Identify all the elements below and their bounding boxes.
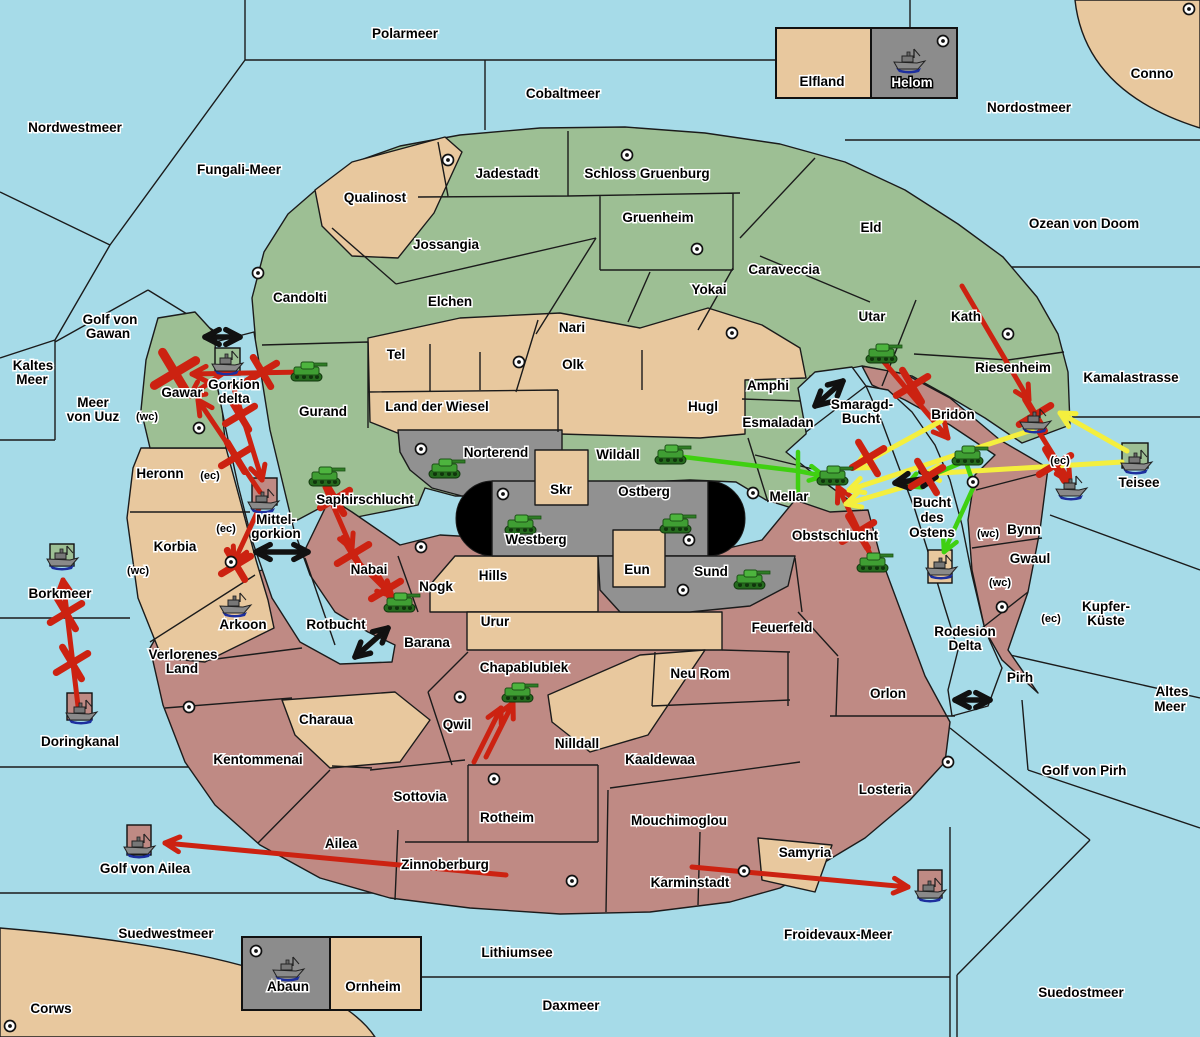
- territory-label: Nogk: [419, 579, 453, 594]
- territory-label: (ec): [216, 523, 236, 535]
- territory-label: Rotbucht: [306, 617, 366, 632]
- town-dot: [443, 155, 454, 166]
- territory-label: Meer: [77, 395, 109, 410]
- town-dot: [498, 489, 509, 500]
- territory-label: Altes: [1155, 684, 1188, 699]
- town-dot: [748, 488, 759, 499]
- territory-label: Norterend: [464, 445, 529, 460]
- territory-label: Cobaltmeer: [526, 86, 601, 101]
- territory-label: Heronn: [136, 466, 183, 481]
- legend-bottom: [242, 937, 421, 1010]
- region-eun: [613, 530, 665, 587]
- territory-label: (wc): [127, 565, 149, 577]
- territory-label: Helom: [891, 75, 932, 90]
- territory-label: Losteria: [859, 782, 912, 797]
- territory-label: Urur: [481, 614, 510, 629]
- territory-label: Gwaul: [1010, 551, 1051, 566]
- territory-label: Land der Wiesel: [385, 399, 488, 414]
- territory-label: des: [920, 510, 943, 525]
- territory-label: Land: [166, 661, 198, 676]
- town-dot: [184, 702, 195, 713]
- territory-label: Chapablublek: [480, 660, 569, 675]
- territory-label: (ec): [200, 470, 220, 482]
- territory-label: Ozean von Doom: [1029, 216, 1139, 231]
- territory-label: Lithiumsee: [481, 945, 553, 960]
- game-map[interactable]: PolarmeerCobaltmeerNordostmeerConnoNordw…: [0, 0, 1200, 1037]
- territory-label: Orlon: [870, 686, 906, 701]
- town-dot: [416, 444, 427, 455]
- town-dot: [678, 585, 689, 596]
- territory-label: (wc): [977, 528, 999, 540]
- territory-label: Mouchimoglou: [631, 813, 727, 828]
- territory-label: Sund: [694, 564, 728, 579]
- territory-label: Suedwestmeer: [118, 926, 214, 941]
- territory-label: Gawan: [86, 326, 130, 341]
- territory-label: Polarmeer: [372, 26, 439, 41]
- territory-label: Riesenheim: [975, 360, 1051, 375]
- territory-label: (wc): [989, 577, 1011, 589]
- territory-label: Kentommenai: [213, 752, 302, 767]
- territory-label: Ostens: [909, 525, 955, 540]
- territory-label: Gawar: [161, 385, 203, 400]
- town-dot: [943, 757, 954, 768]
- territory-label: gorkion: [251, 526, 301, 541]
- territory-label: (ec): [1041, 613, 1061, 625]
- territory-label: Smaragd-: [831, 397, 893, 412]
- territory-label: Küste: [1087, 613, 1125, 628]
- town-dot: [251, 946, 262, 957]
- territory-label: Nilldall: [555, 736, 599, 751]
- territory-label: Neu Rom: [670, 666, 729, 681]
- territory-label: Bucht: [913, 495, 952, 510]
- territory-label: Corws: [30, 1001, 71, 1016]
- territory-label: Rodesion: [934, 624, 996, 639]
- territory-label: Kupfer-: [1082, 599, 1130, 614]
- territory-label: delta: [218, 391, 250, 406]
- territory-label: Amphi: [747, 378, 789, 393]
- territory-label: Ostberg: [618, 484, 670, 499]
- territory-label: Meer: [1154, 699, 1186, 714]
- territory-label: Meer: [16, 372, 48, 387]
- territory-label: Fungali-Meer: [197, 162, 282, 177]
- territory-label: Ornheim: [345, 979, 401, 994]
- region-hills: [430, 556, 598, 612]
- territory-label: Obstschlucht: [792, 528, 879, 543]
- town-dot: [5, 1021, 16, 1032]
- town-dot: [968, 477, 979, 488]
- town-dot: [684, 535, 695, 546]
- town-dot: [938, 36, 949, 47]
- town-dot: [416, 542, 427, 553]
- territory-label: Esmaladan: [742, 415, 813, 430]
- territory-label: Jossangia: [413, 237, 480, 252]
- territory-label: Conno: [1131, 66, 1174, 81]
- territory-label: Candolti: [273, 290, 327, 305]
- territory-label: Korbia: [154, 539, 197, 554]
- territory-label: Bridon: [931, 407, 975, 422]
- territory-label: Arkoon: [219, 617, 266, 632]
- territory-label: Skr: [550, 482, 573, 497]
- territory-label: Zinnoberburg: [401, 857, 489, 872]
- territory-label: Elfland: [799, 74, 844, 89]
- territory-label: Teisee: [1118, 475, 1160, 490]
- territory-label: Mittel-: [256, 512, 296, 527]
- territory-label: Rotheim: [480, 810, 534, 825]
- territory-label: Schloss Gruenburg: [584, 166, 709, 181]
- territory-label: Samyria: [779, 845, 832, 860]
- territory-label: Caraveccia: [748, 262, 820, 277]
- town-dot: [514, 357, 525, 368]
- territory-label: (wc): [136, 411, 158, 423]
- territory-label: Kaltes: [13, 358, 54, 373]
- territory-label: Feuerfeld: [752, 620, 813, 635]
- territory-label: Golf von Ailea: [100, 861, 191, 876]
- territory-label: Ailea: [325, 836, 358, 851]
- territory-label: Nari: [559, 320, 585, 335]
- town-dot: [1003, 329, 1014, 340]
- arrow-head: [1060, 413, 1076, 414]
- territory-label: von Uuz: [67, 409, 120, 424]
- arrow-line: [192, 372, 305, 374]
- territory-label: Kath: [951, 309, 981, 324]
- town-dot: [622, 150, 633, 161]
- territory-label: Eun: [624, 562, 650, 577]
- town-dot: [727, 328, 738, 339]
- territory-label: Gorkion: [208, 377, 260, 392]
- territory-label: Suedostmeer: [1038, 985, 1124, 1000]
- town-dot: [226, 557, 237, 568]
- territory-label: Doringkanal: [41, 734, 119, 749]
- territory-label: Kaaldewaa: [625, 752, 695, 767]
- territory-label: Kamalastrasse: [1083, 370, 1179, 385]
- territory-label: Verlorenes: [148, 647, 217, 662]
- territory-label: Westberg: [505, 532, 566, 547]
- town-dot: [455, 692, 466, 703]
- landmass-mid-tan-band: [368, 308, 806, 438]
- territory-label: Froidevaux-Meer: [784, 927, 893, 942]
- territory-label: Utar: [858, 309, 886, 324]
- town-dot: [997, 602, 1008, 613]
- territory-label: Qwil: [443, 717, 472, 732]
- town-dot: [1184, 4, 1195, 15]
- territory-label: Elchen: [428, 294, 472, 309]
- town-dot: [567, 876, 578, 887]
- territory-label: Hugl: [688, 399, 718, 414]
- territory-label: Olk: [562, 357, 584, 372]
- territory-label: Tel: [387, 347, 406, 362]
- territory-label: Bynn: [1007, 522, 1041, 537]
- territory-label: Borkmeer: [28, 586, 92, 601]
- territory-label: Daxmeer: [542, 998, 600, 1013]
- territory-label: Eld: [860, 220, 881, 235]
- territory-label: Pirh: [1007, 670, 1033, 685]
- wargame-map-screen: PolarmeerCobaltmeerNordostmeerConnoNordw…: [0, 0, 1200, 1037]
- town-dot: [739, 866, 750, 877]
- territory-label: Qualinost: [344, 190, 407, 205]
- town-dot: [253, 268, 264, 279]
- territory-label: Jadestadt: [475, 166, 539, 181]
- territory-label: Golf von Pirh: [1042, 763, 1127, 778]
- territory-label: Delta: [948, 638, 982, 653]
- territory-label: Bucht: [842, 411, 881, 426]
- territory-label: Hills: [479, 568, 508, 583]
- territory-label: Yokai: [691, 282, 726, 297]
- town-dot: [489, 774, 500, 785]
- territory-label: Abaun: [267, 979, 309, 994]
- territory-label: Nabai: [351, 562, 388, 577]
- town-dot: [194, 423, 205, 434]
- territory-label: Golf von: [83, 312, 138, 327]
- territory-label: Sottovia: [393, 789, 447, 804]
- territory-label: Karminstadt: [651, 875, 730, 890]
- territory-label: (ec): [1050, 455, 1070, 467]
- territory-label: Gurand: [299, 404, 347, 419]
- town-dot: [692, 244, 703, 255]
- territory-label: Saphirschlucht: [316, 492, 414, 507]
- territory-label: Barana: [404, 635, 450, 650]
- territory-label: Nordwestmeer: [28, 120, 123, 135]
- territory-label: Gruenheim: [622, 210, 693, 225]
- territory-label: Charaua: [299, 712, 354, 727]
- territory-label: Nordostmeer: [987, 100, 1072, 115]
- territory-label: Wildall: [596, 447, 639, 462]
- territory-label: Mellar: [769, 489, 809, 504]
